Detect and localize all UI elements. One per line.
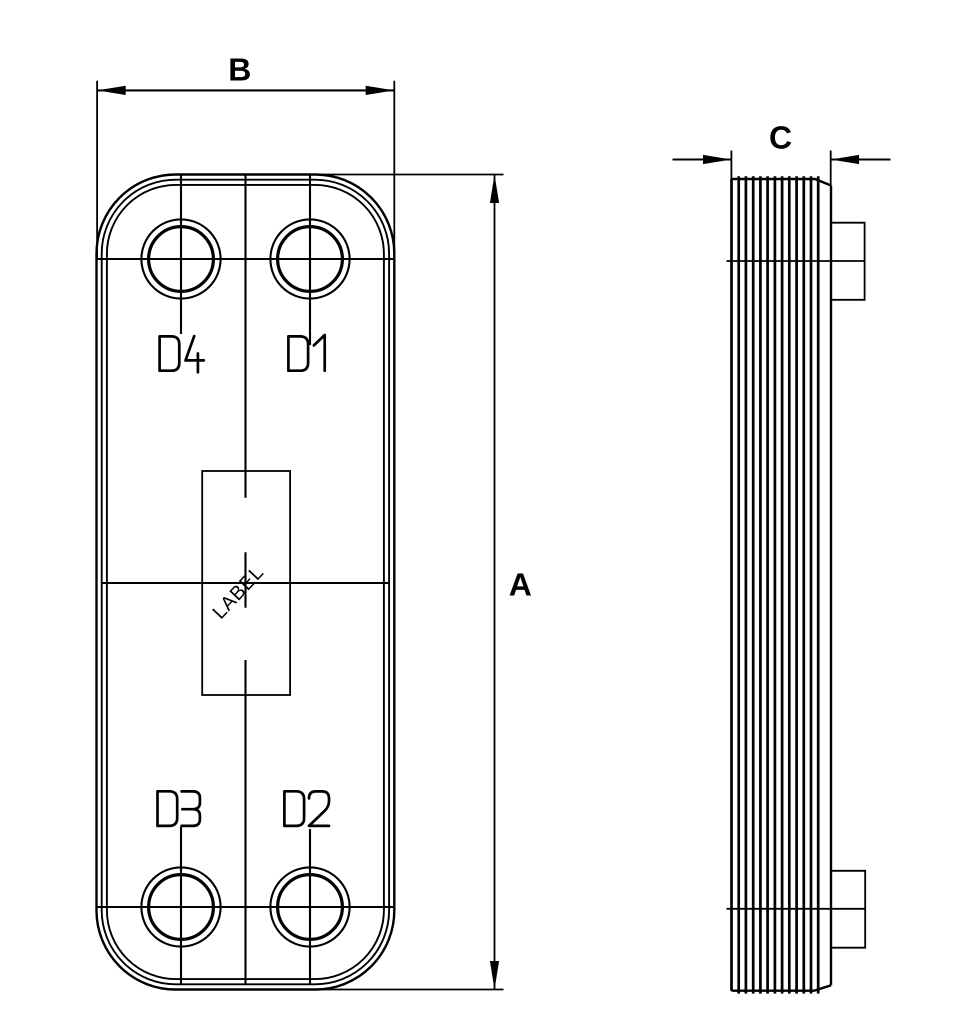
svg-text:B: B [228,52,251,88]
svg-text:C: C [769,120,792,156]
svg-text:A: A [509,567,532,603]
